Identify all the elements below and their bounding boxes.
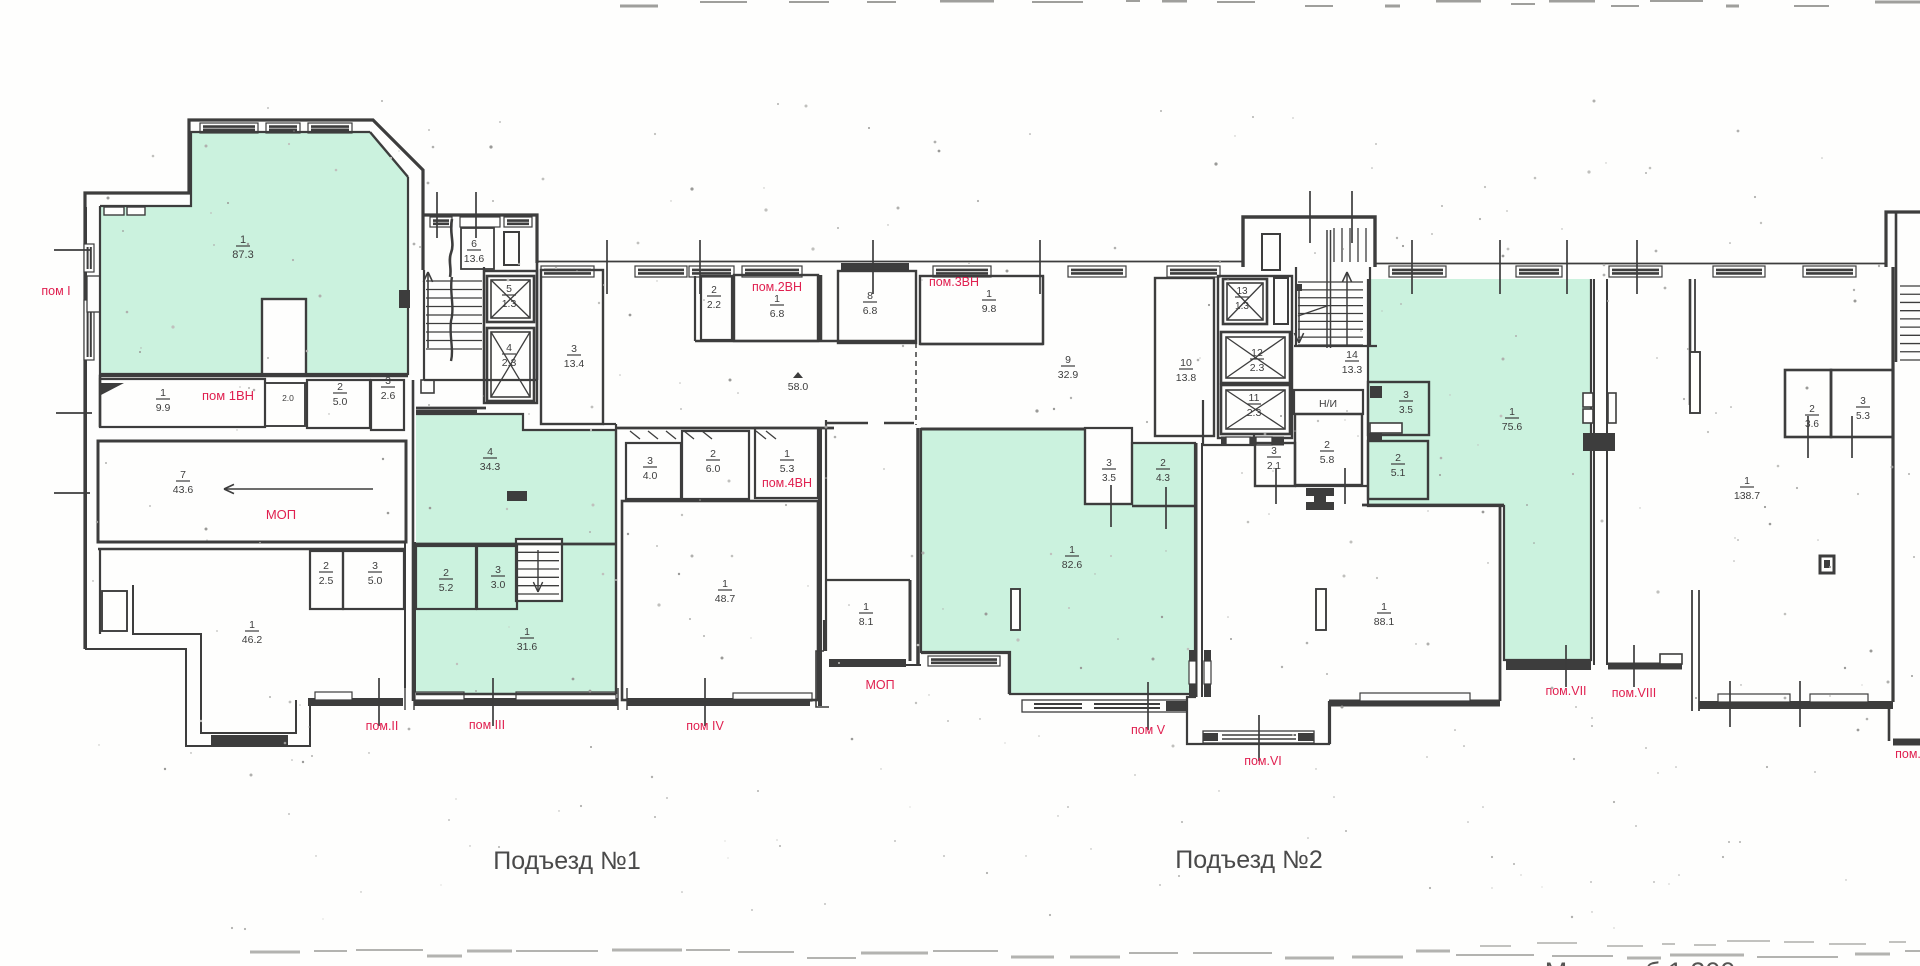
svg-text:88.1: 88.1 (1374, 616, 1395, 628)
svg-text:2: 2 (1160, 458, 1166, 469)
svg-text:34.3: 34.3 (480, 461, 501, 473)
svg-text:11: 11 (1249, 392, 1260, 404)
svg-text:46.2: 46.2 (242, 634, 263, 646)
svg-text:6.8: 6.8 (770, 308, 785, 320)
svg-text:3: 3 (1860, 396, 1866, 407)
svg-text:31.6: 31.6 (517, 641, 538, 653)
svg-text:пом.2ВН: пом.2ВН (752, 280, 802, 294)
svg-text:3: 3 (372, 560, 378, 572)
svg-text:9: 9 (1065, 354, 1071, 366)
svg-text:58.0: 58.0 (788, 381, 809, 393)
svg-text:6.0: 6.0 (706, 463, 721, 475)
svg-text:5.0: 5.0 (368, 575, 383, 587)
svg-text:2: 2 (1395, 452, 1401, 464)
svg-text:1: 1 (722, 578, 728, 590)
svg-text:3: 3 (1403, 390, 1409, 401)
svg-text:2: 2 (323, 560, 329, 572)
svg-text:1: 1 (1381, 601, 1387, 613)
svg-text:75.6: 75.6 (1502, 421, 1523, 433)
svg-text:3.5: 3.5 (1399, 405, 1413, 416)
svg-text:2.6: 2.6 (381, 390, 396, 402)
svg-text:2.2: 2.2 (707, 300, 721, 311)
svg-text:6.8: 6.8 (863, 305, 878, 317)
svg-text:2: 2 (711, 285, 717, 296)
svg-text:3: 3 (571, 343, 577, 355)
svg-text:1: 1 (986, 288, 992, 300)
svg-text:1: 1 (1509, 406, 1515, 418)
svg-text:4.3: 4.3 (1156, 473, 1170, 484)
svg-text:3: 3 (1106, 458, 1112, 469)
svg-text:10: 10 (1180, 357, 1192, 369)
svg-text:пом.4ВН: пом.4ВН (762, 476, 812, 490)
svg-text:1.3: 1.3 (502, 298, 517, 310)
svg-text:8.1: 8.1 (859, 616, 874, 628)
svg-text:4: 4 (487, 446, 493, 458)
svg-text:пом.VI: пом.VI (1244, 754, 1282, 768)
svg-text:6: 6 (471, 238, 477, 250)
svg-text:пом.: пом. (1895, 747, 1920, 761)
svg-text:3.0: 3.0 (491, 579, 506, 591)
svg-text:2: 2 (710, 448, 716, 460)
svg-text:14: 14 (1346, 349, 1358, 361)
svg-text:9.8: 9.8 (982, 303, 997, 315)
svg-text:МОП: МОП (266, 507, 296, 522)
svg-text:13: 13 (1236, 286, 1248, 297)
svg-text:2.5: 2.5 (319, 575, 334, 587)
svg-text:7: 7 (180, 469, 186, 481)
svg-text:82.6: 82.6 (1062, 559, 1083, 571)
svg-text:13.8: 13.8 (1176, 372, 1197, 384)
svg-text:2: 2 (1809, 404, 1815, 415)
svg-text:1: 1 (784, 448, 790, 460)
svg-text:пом.II: пом.II (366, 719, 399, 733)
svg-text:5.1: 5.1 (1391, 467, 1406, 479)
svg-text:2.3: 2.3 (1247, 407, 1262, 419)
svg-text:5.3: 5.3 (1856, 411, 1870, 422)
svg-text:пом V: пом V (1131, 723, 1166, 737)
svg-text:32.9: 32.9 (1058, 369, 1079, 381)
svg-text:5.2: 5.2 (439, 582, 454, 594)
svg-text:1: 1 (1744, 475, 1750, 487)
svg-text:13.4: 13.4 (564, 358, 585, 370)
svg-text:2: 2 (1324, 439, 1330, 451)
svg-text:1: 1 (160, 387, 166, 399)
svg-text:2.3: 2.3 (502, 357, 517, 369)
svg-text:3: 3 (495, 564, 501, 576)
svg-text:2.1: 2.1 (1267, 461, 1281, 472)
svg-text:МОП: МОП (865, 678, 894, 692)
svg-text:48.7: 48.7 (715, 593, 736, 605)
svg-text:Н/И: Н/И (1319, 398, 1337, 410)
svg-text:5: 5 (506, 283, 512, 295)
svg-text:Подъезд №1: Подъезд №1 (493, 847, 641, 875)
svg-text:5.0: 5.0 (333, 396, 348, 408)
svg-text:3: 3 (647, 455, 653, 467)
svg-text:87.3: 87.3 (232, 249, 253, 261)
svg-text:пом 1ВН: пом 1ВН (202, 388, 254, 403)
svg-text:1: 1 (863, 601, 869, 613)
svg-text:пом.3ВН: пом.3ВН (929, 275, 979, 289)
svg-text:9.9: 9.9 (156, 402, 171, 414)
svg-text:8: 8 (867, 290, 873, 302)
svg-text:2: 2 (337, 381, 343, 393)
svg-text:1: 1 (240, 234, 246, 246)
svg-text:1.3: 1.3 (1235, 301, 1249, 312)
svg-text:пом III: пом III (469, 718, 505, 732)
svg-text:5.3: 5.3 (780, 463, 795, 475)
svg-text:4.0: 4.0 (643, 470, 658, 482)
svg-text:13.6: 13.6 (464, 253, 485, 265)
svg-text:5.8: 5.8 (1320, 454, 1335, 466)
svg-text:13.3: 13.3 (1342, 364, 1363, 376)
svg-text:1: 1 (524, 626, 530, 638)
svg-text:1: 1 (249, 619, 255, 631)
svg-text:Подъезд №2: Подъезд №2 (1175, 846, 1323, 874)
svg-text:3.5: 3.5 (1102, 473, 1116, 484)
svg-text:пом.VIII: пом.VIII (1612, 686, 1657, 700)
svg-text:43.6: 43.6 (173, 484, 194, 496)
svg-text:3: 3 (385, 375, 391, 387)
svg-text:138.7: 138.7 (1734, 490, 1760, 502)
svg-text:12: 12 (1251, 347, 1263, 359)
svg-text:1: 1 (774, 293, 780, 305)
svg-text:2.3: 2.3 (1250, 362, 1265, 374)
svg-text:1: 1 (1069, 544, 1075, 556)
svg-text:2: 2 (443, 567, 449, 579)
svg-text:3: 3 (1271, 446, 1277, 457)
svg-text:пом I: пом I (41, 284, 70, 298)
svg-text:пом IV: пом IV (686, 719, 724, 733)
svg-text:4: 4 (506, 342, 512, 354)
svg-text:2.0: 2.0 (282, 393, 294, 403)
